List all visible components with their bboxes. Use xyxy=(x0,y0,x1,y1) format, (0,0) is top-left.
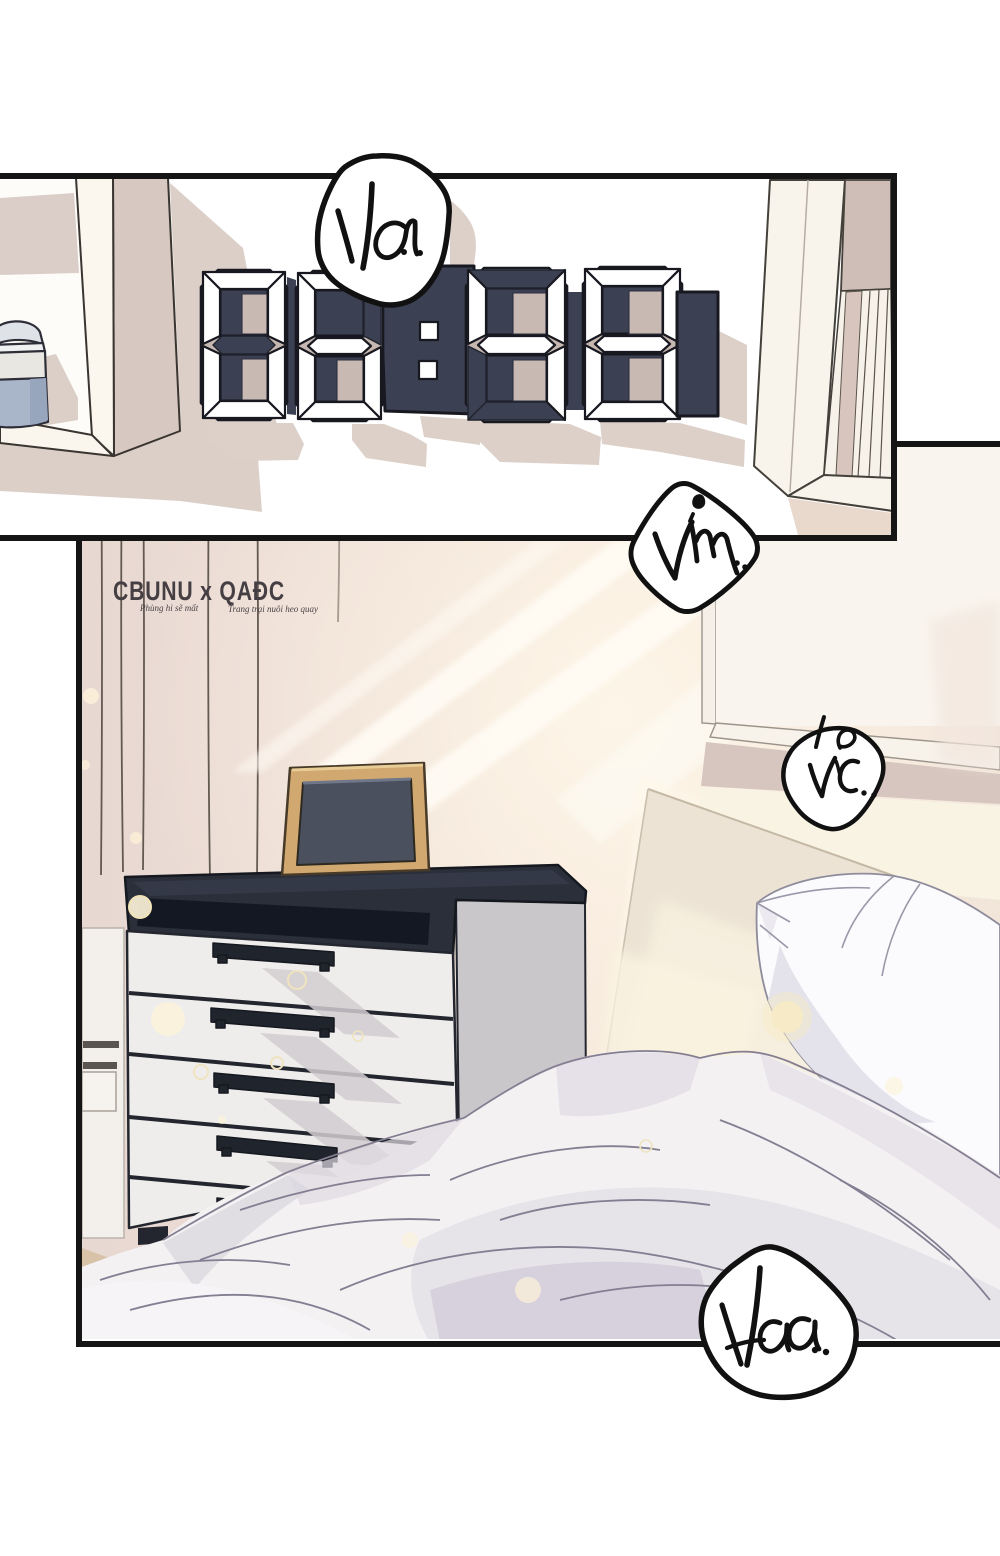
svg-text:Trang trại nuôi heo quay: Trang trại nuôi heo quay xyxy=(228,604,318,614)
svg-text:CBUNU x QAĐC: CBUNU x QAĐC xyxy=(113,576,285,606)
svg-text:Phùng hi sẽ mất: Phùng hi sẽ mất xyxy=(139,603,199,613)
